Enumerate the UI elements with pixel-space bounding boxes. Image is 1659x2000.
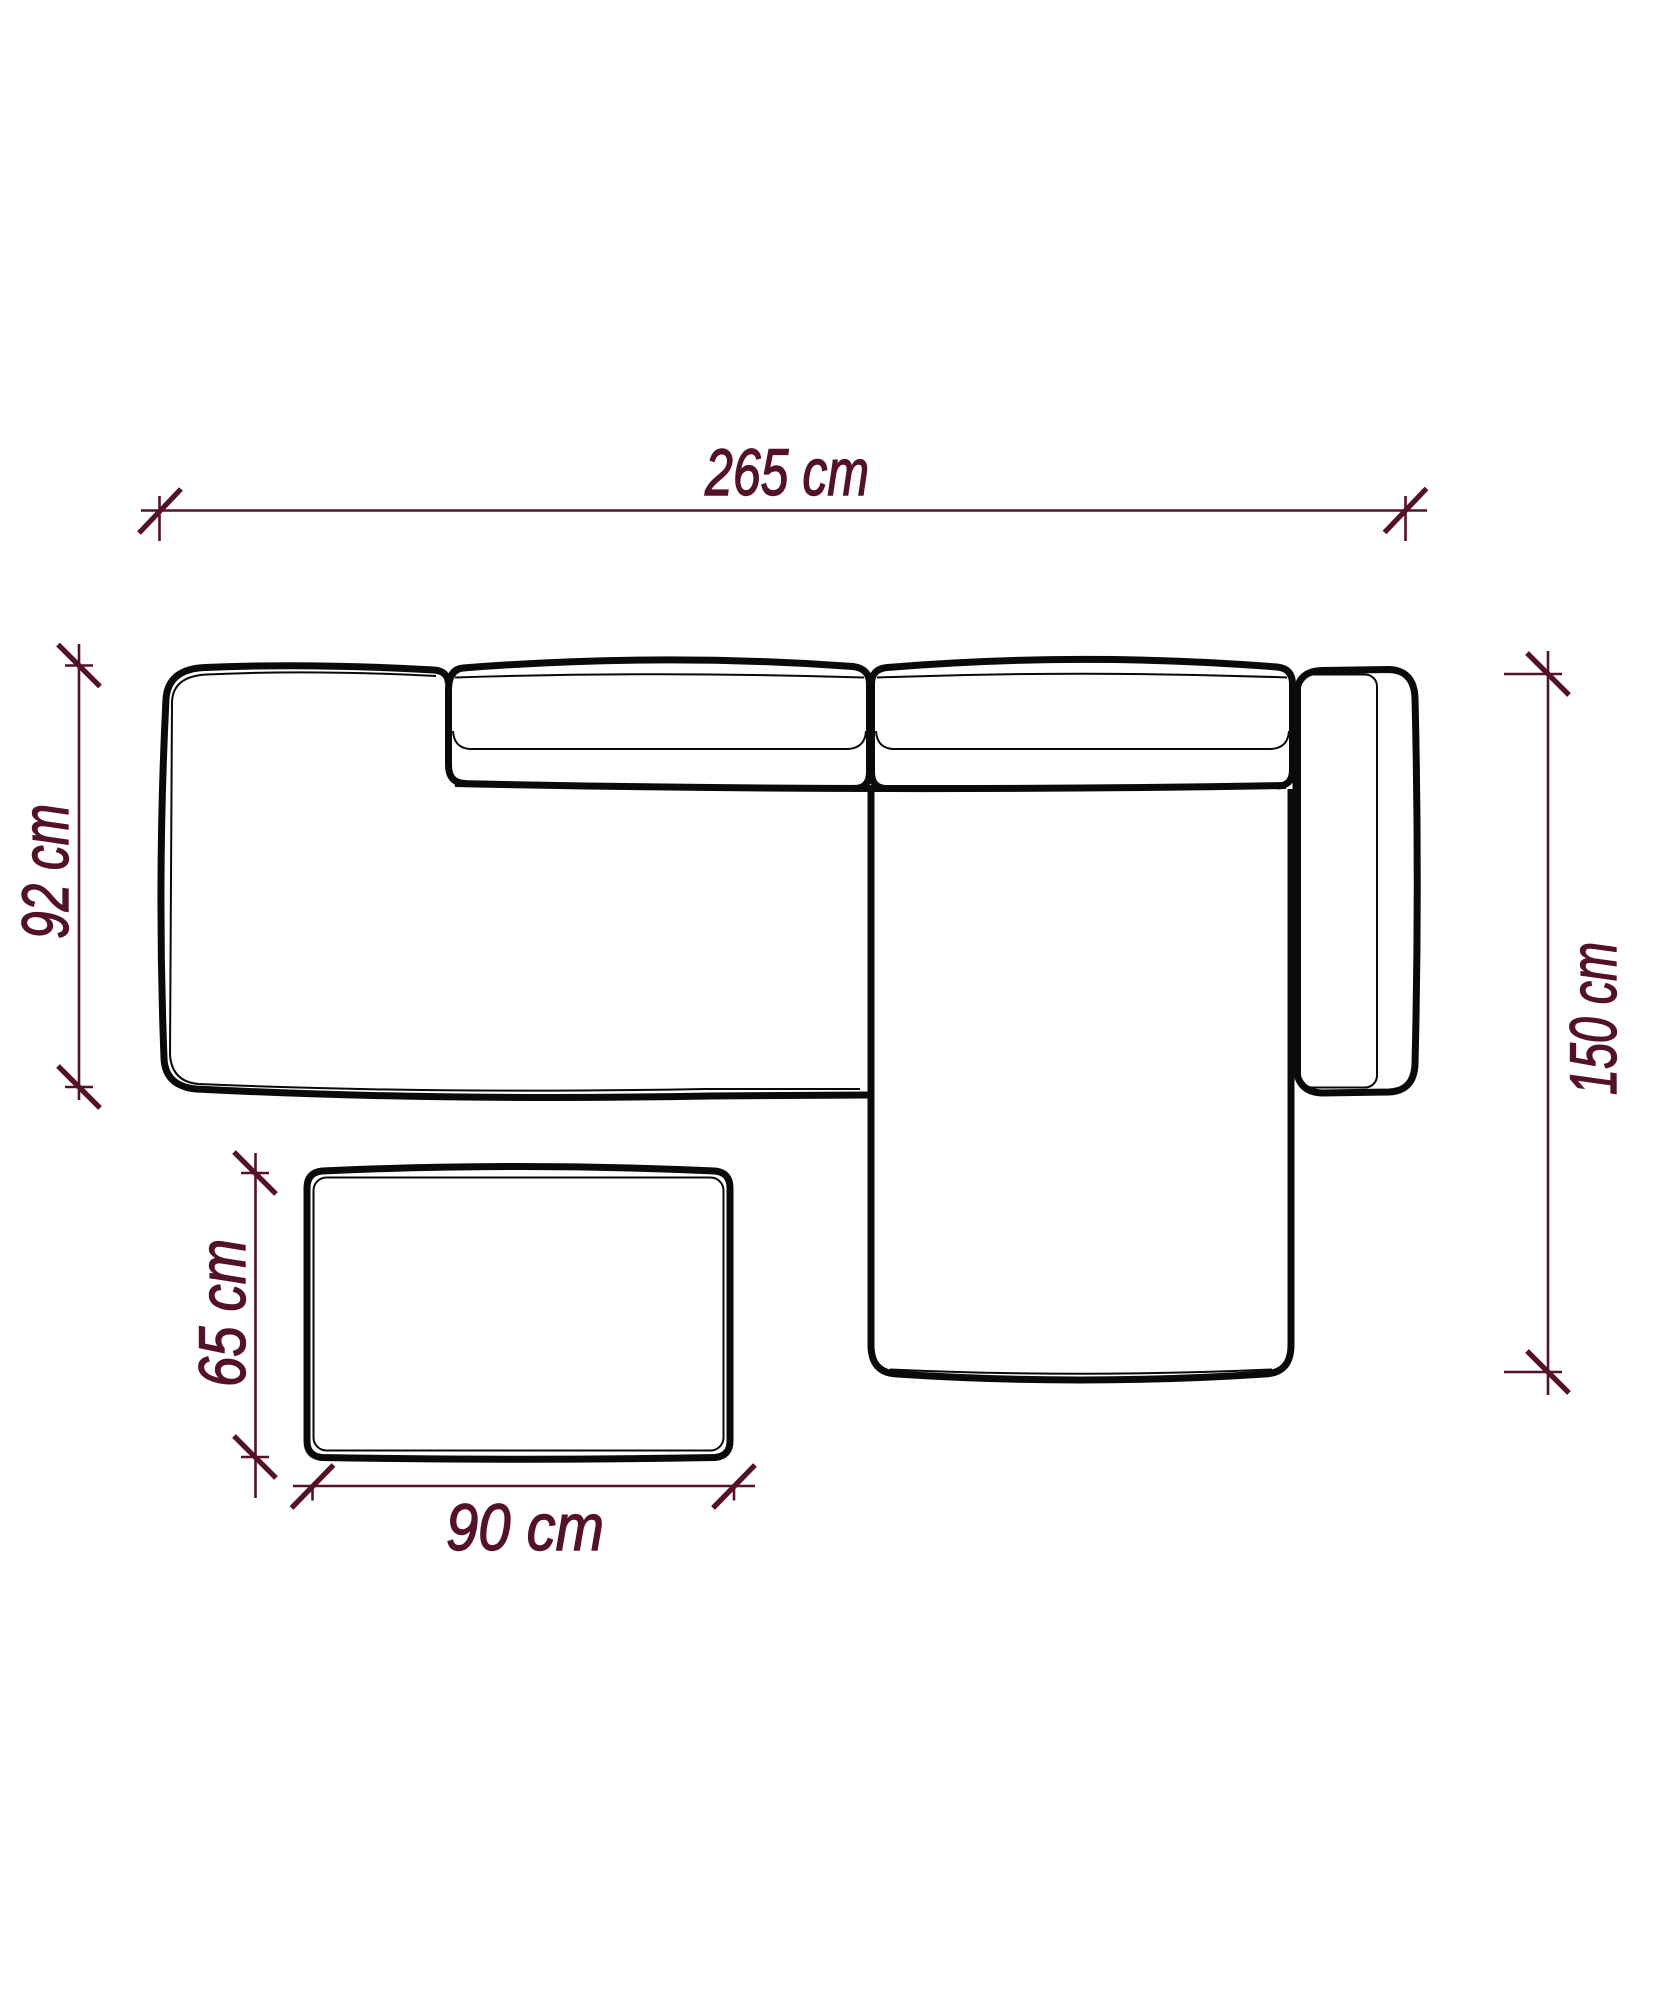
svg-text:150 cm: 150 cm bbox=[1556, 942, 1630, 1095]
svg-text:90 cm: 90 cm bbox=[446, 1490, 604, 1564]
svg-text:65 cm: 65 cm bbox=[185, 1239, 259, 1387]
svg-text:265 cm: 265 cm bbox=[704, 435, 869, 509]
svg-text:92 cm: 92 cm bbox=[8, 804, 82, 939]
